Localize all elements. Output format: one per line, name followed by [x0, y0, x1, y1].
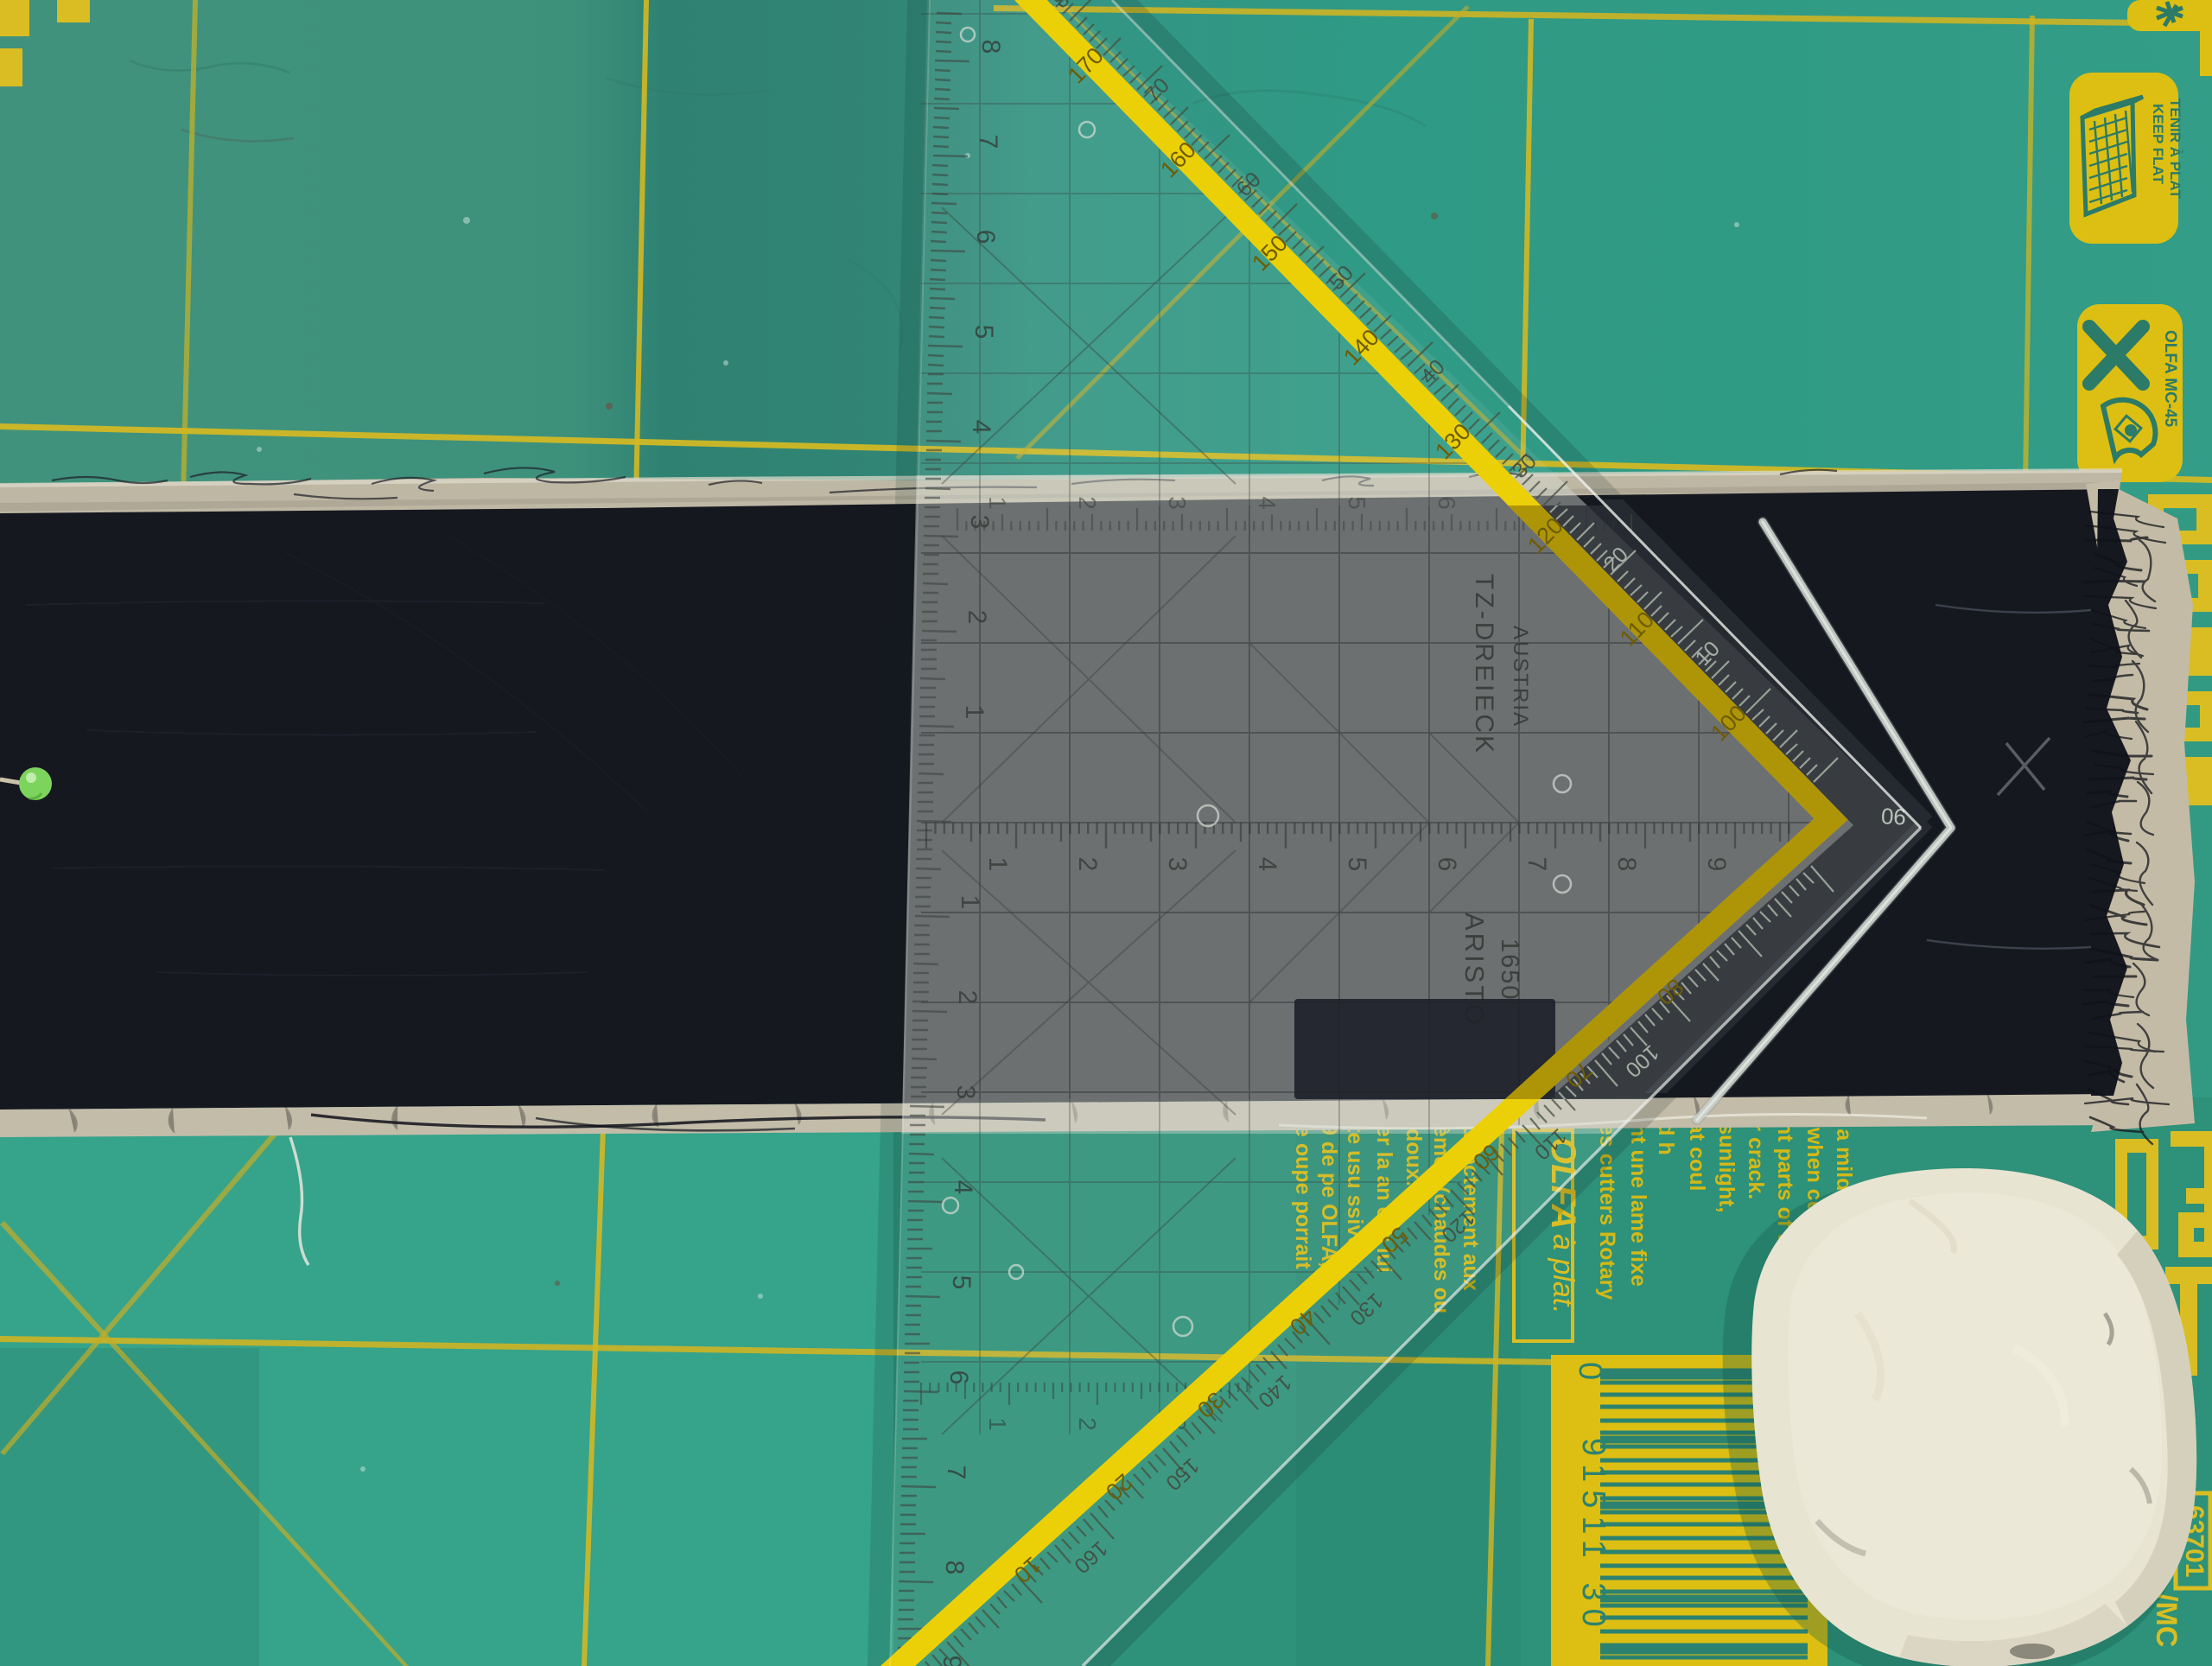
- svg-text:OLFA MC-45: OLFA MC-45: [2161, 330, 2179, 428]
- svg-text:91511 30: 91511 30: [1575, 1438, 1611, 1635]
- svg-text:7: 7: [942, 1466, 970, 1480]
- svg-text:TZ-DREIECK: TZ-DREIECK: [1470, 574, 1498, 755]
- svg-text:4: 4: [949, 1180, 977, 1195]
- svg-text:4: 4: [1253, 857, 1281, 872]
- svg-text:4: 4: [967, 420, 995, 435]
- svg-text:7: 7: [974, 135, 1002, 149]
- svg-text:2: 2: [953, 990, 982, 1005]
- svg-text:8: 8: [976, 40, 1005, 54]
- svg-text:3: 3: [1163, 857, 1192, 872]
- svg-text:3: 3: [1164, 496, 1191, 510]
- svg-text:5: 5: [1344, 496, 1370, 510]
- svg-text:7: 7: [1522, 857, 1551, 872]
- svg-text:5: 5: [1343, 857, 1371, 872]
- svg-text:8: 8: [940, 1561, 969, 1575]
- svg-text:1650: 1650: [1496, 938, 1523, 1002]
- svg-text:5: 5: [947, 1275, 976, 1290]
- svg-text:6: 6: [1433, 857, 1461, 872]
- svg-text:6: 6: [971, 230, 1000, 245]
- svg-text:1: 1: [984, 496, 1011, 510]
- svg-text:2: 2: [1073, 857, 1102, 872]
- svg-text:6: 6: [944, 1370, 973, 1385]
- svg-text:5: 5: [969, 325, 998, 340]
- svg-text:TENIR À PLAT: TENIR À PLAT: [2167, 99, 2183, 199]
- svg-text:2: 2: [963, 610, 991, 625]
- svg-text:2: 2: [1074, 496, 1101, 510]
- svg-text:3: 3: [951, 1085, 980, 1100]
- svg-text:9: 9: [1702, 857, 1731, 872]
- svg-text:à plat.: à plat.: [1547, 1234, 1580, 1314]
- svg-text:0: 0: [1572, 1362, 1608, 1380]
- svg-text:1: 1: [956, 895, 984, 910]
- svg-text:2: 2: [1074, 1417, 1101, 1431]
- svg-text:nt une lame fixe: nt une lame fixe: [1626, 1123, 1650, 1287]
- svg-text:6: 6: [1433, 496, 1460, 510]
- svg-text:3: 3: [965, 515, 994, 530]
- svg-text:4: 4: [1254, 496, 1281, 510]
- svg-text:1: 1: [983, 857, 1012, 872]
- svg-text:8: 8: [1612, 857, 1641, 872]
- svg-text:AUSTRIA: AUSTRIA: [1509, 626, 1532, 728]
- svg-text:KEEP FLAT: KEEP FLAT: [2150, 104, 2166, 184]
- svg-text:1: 1: [960, 705, 988, 720]
- svg-text:1: 1: [984, 1417, 1011, 1431]
